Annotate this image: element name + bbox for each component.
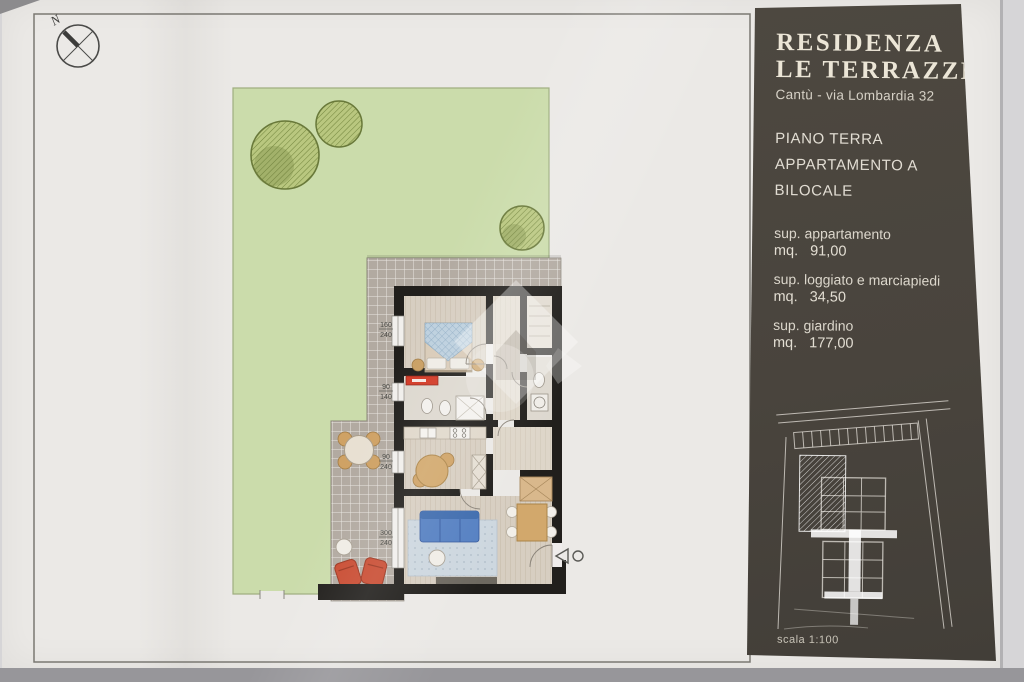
area-label: sup. loggiato e marciapiedi	[774, 271, 979, 289]
info-panel: RESIDENZA LE TERRAZZE Cantù - via Lombar…	[745, 0, 1001, 668]
site-plan-inset	[764, 377, 978, 658]
kitchen-tall-units	[472, 455, 486, 489]
area-value: mq.177,00	[773, 335, 978, 353]
floor-plan-sheet: N	[0, 0, 1024, 682]
svg-text:140: 140	[380, 394, 392, 401]
bidet	[440, 401, 451, 416]
tree	[316, 101, 362, 147]
scale-label: scala 1:100	[777, 634, 839, 647]
kitchen-counter	[404, 427, 486, 439]
garden-gate	[260, 591, 284, 597]
unit-label: APPARTAMENTO A	[775, 152, 980, 180]
area-item: sup. loggiato e marciapiedi mq.34,50	[773, 271, 978, 307]
sofa	[420, 511, 479, 542]
entry-hall-floor	[493, 427, 552, 470]
residence-title: RESIDENZA LE TERRAZZE	[776, 29, 982, 85]
unit-description: PIANO TERRA APPARTAMENTO A BILOCALE	[774, 126, 980, 206]
svg-text:90: 90	[382, 454, 390, 461]
radiator-detail	[412, 379, 426, 382]
highlighted-unit	[799, 456, 846, 532]
svg-text:300: 300	[380, 530, 392, 537]
svg-text:90: 90	[382, 384, 390, 391]
tv-bench	[436, 577, 497, 584]
area-value: mq.34,50	[773, 289, 978, 307]
area-item: sup. appartamento mq.91,00	[774, 225, 979, 261]
area-value: mq.91,00	[774, 243, 979, 261]
svg-text:240: 240	[380, 540, 392, 547]
outdoor-dining-set	[338, 432, 380, 469]
outdoor-side-table	[336, 539, 352, 555]
tree	[251, 121, 319, 189]
stove	[450, 427, 470, 439]
nightstand	[412, 359, 424, 371]
washing-machine	[531, 394, 548, 411]
svg-text:240: 240	[380, 332, 392, 339]
area-label: sup. giardino	[773, 317, 978, 335]
type-label: BILOCALE	[774, 178, 979, 206]
svg-text:160: 160	[380, 322, 392, 329]
area-item: sup. giardino mq.177,00	[773, 317, 978, 353]
north-compass-icon: N	[47, 11, 99, 67]
area-label: sup. appartamento	[774, 225, 979, 243]
svg-text:240: 240	[380, 464, 392, 471]
coffee-table	[429, 550, 445, 566]
wardrobe	[520, 477, 552, 501]
sink	[422, 399, 433, 414]
tree	[500, 206, 544, 250]
floor-label: PIANO TERRA	[775, 126, 980, 154]
residence-address: Cantù - via Lombardia 32	[776, 87, 981, 104]
area-list: sup. appartamento mq.91,00 sup. loggiato…	[773, 225, 979, 353]
